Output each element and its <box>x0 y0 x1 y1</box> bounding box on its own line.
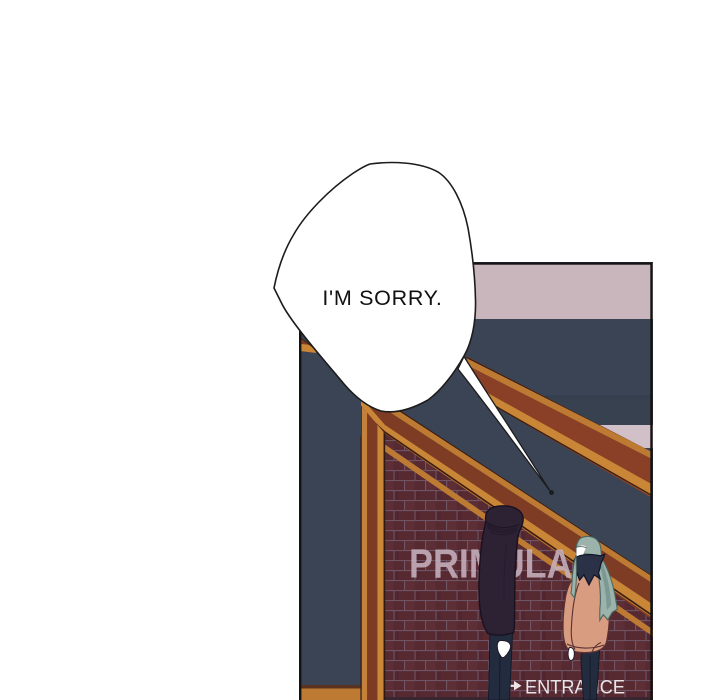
svg-text:ENTRANCE: ENTRANCE <box>525 678 625 699</box>
svg-text:I'M SORRY.: I'M SORRY. <box>322 286 442 310</box>
